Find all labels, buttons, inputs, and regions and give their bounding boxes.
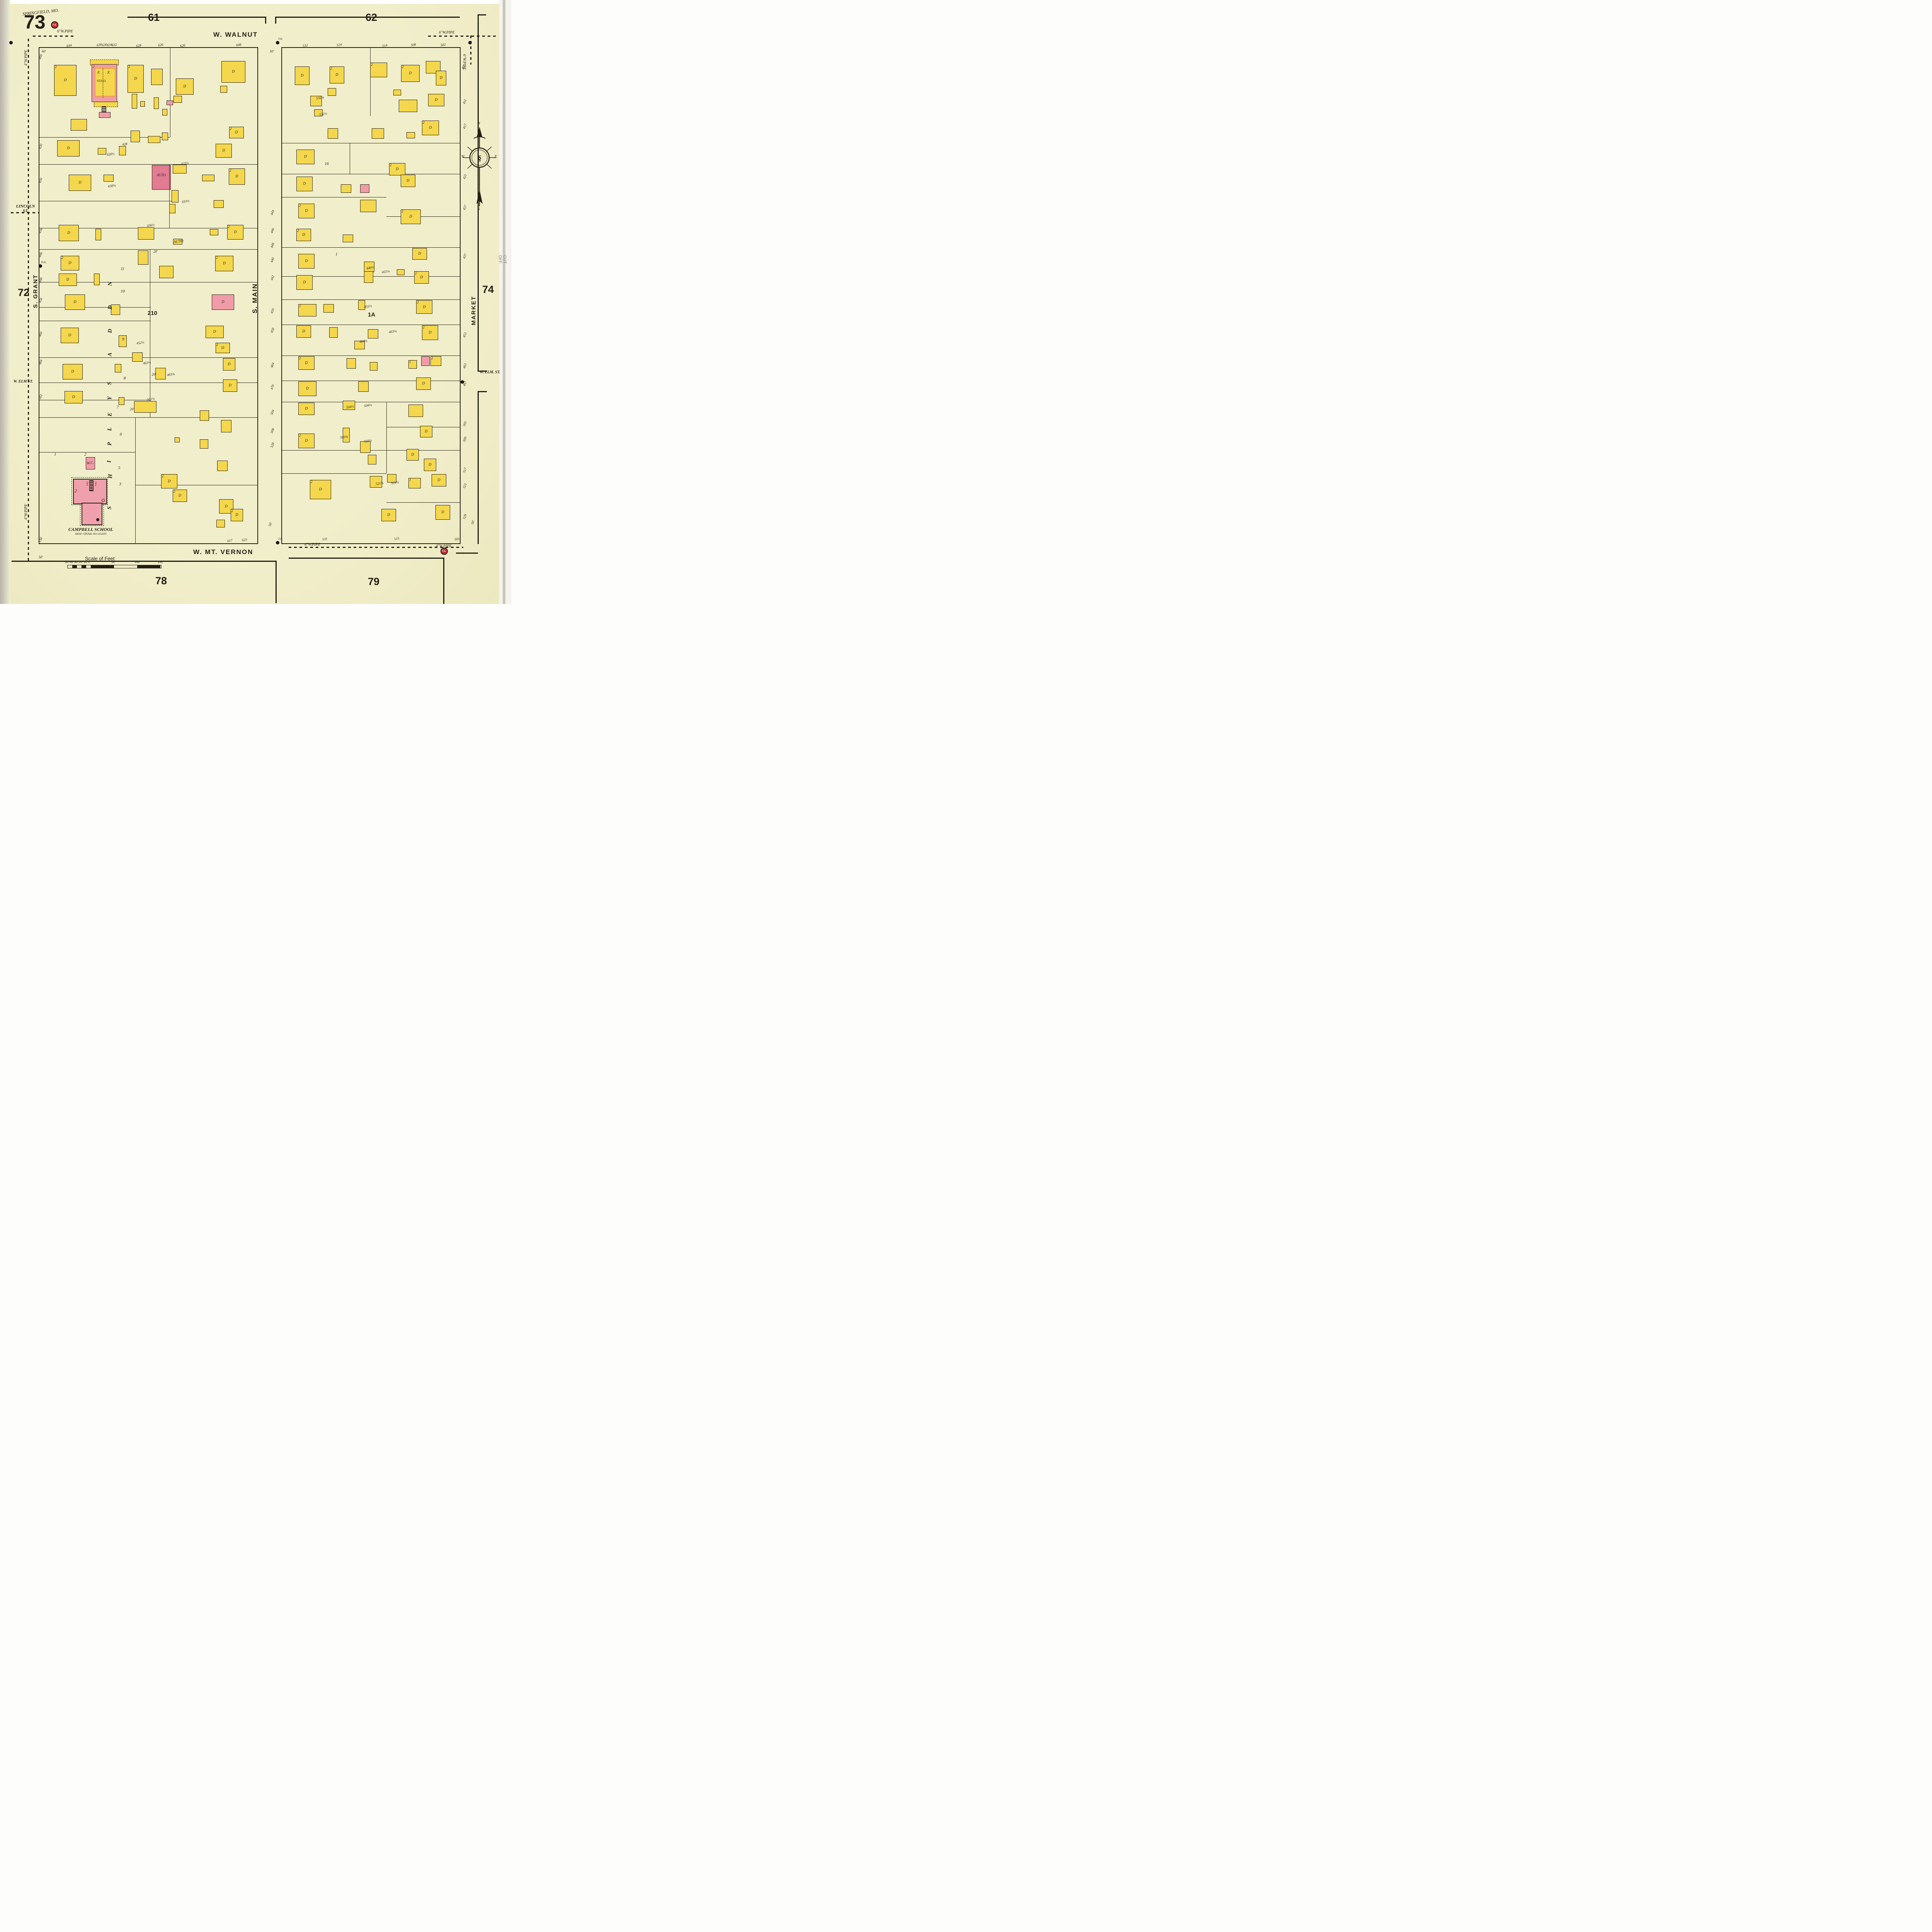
building-label: D <box>422 125 439 131</box>
building: 1 <box>298 304 316 316</box>
house-number: 428 <box>122 142 128 146</box>
building-floors: 2 <box>417 300 419 304</box>
building: D2 <box>161 474 177 488</box>
auto-label: AUTO <box>152 173 170 177</box>
block-label-210: 210 <box>148 310 157 316</box>
building <box>214 200 224 208</box>
map-line <box>281 381 460 381</box>
building: 2 <box>430 356 441 366</box>
building: D2 <box>414 271 429 284</box>
building: D2 <box>330 66 344 83</box>
map-line <box>275 17 460 18</box>
house-number: 531 <box>322 537 328 541</box>
pipe-label: 6"W.PIPE <box>462 54 466 70</box>
building: D <box>298 403 315 415</box>
building-floors: 2 <box>231 509 233 513</box>
map-line <box>39 417 257 418</box>
house-number: 617 <box>227 538 233 543</box>
building-floors: 2 <box>423 325 425 329</box>
building: D <box>420 426 432 437</box>
lot-number: 1 <box>335 252 338 257</box>
building: D <box>223 379 237 392</box>
hydrant-dot <box>461 380 464 384</box>
building-floors: 1 <box>299 304 301 308</box>
map-line <box>169 164 170 228</box>
pipe-line <box>33 36 76 37</box>
building-label: D <box>59 230 79 236</box>
building <box>341 184 351 193</box>
building: D2 <box>227 225 243 240</box>
map-line <box>39 47 39 544</box>
building: D <box>59 274 77 286</box>
building <box>408 405 423 417</box>
subdivision-letter: N <box>107 282 114 286</box>
lot-number: 3 <box>119 482 121 486</box>
lot-number: 7 <box>117 405 119 410</box>
building-label: D <box>216 148 232 153</box>
building-floors: 1 <box>409 478 411 482</box>
building: D <box>381 509 396 521</box>
map-line <box>39 249 257 250</box>
house-number: 50' <box>270 49 274 53</box>
building: D2 <box>216 343 230 353</box>
building: D <box>432 474 446 486</box>
house-number: 502 <box>440 43 446 47</box>
building-label: D <box>65 299 85 305</box>
building <box>162 109 167 116</box>
building <box>368 329 378 338</box>
house-number: 420½ <box>106 152 114 157</box>
house-number: 50' <box>470 520 475 525</box>
pipe-label: 4"W.PIPE <box>436 544 452 548</box>
building: D2 <box>401 209 421 224</box>
building-floors: 2 <box>297 229 299 233</box>
map-line <box>478 391 487 392</box>
map-canvas: SPRINGFIELD, MO. 73 F.A. F.A. 61 62 72 7… <box>0 0 512 604</box>
building: D2 <box>389 163 405 175</box>
house-number: 521¼ <box>375 481 383 486</box>
floors-label: 2 <box>93 65 95 68</box>
building: D2 <box>54 65 77 96</box>
building <box>328 88 336 96</box>
building-label: D <box>436 75 446 81</box>
fire-alarm-badge: F.A. <box>440 548 448 555</box>
building: D2 <box>229 127 244 138</box>
map-line <box>275 17 276 24</box>
building-floors: 2 <box>173 490 175 493</box>
building: D2 <box>310 480 331 499</box>
sheet-number: 73 <box>24 11 46 33</box>
house-number: 508 <box>270 428 275 434</box>
building: D <box>216 144 232 158</box>
map-line <box>39 400 151 400</box>
map-line <box>281 402 460 402</box>
house-number: 433½ <box>181 199 189 204</box>
map-line <box>281 325 460 325</box>
building-label: D <box>429 97 444 103</box>
building-floors: 2 <box>415 271 417 275</box>
map-line <box>350 143 350 174</box>
street-elm-left: W. ELM ST. <box>12 379 35 384</box>
building <box>200 410 209 421</box>
house-number: 608 <box>236 43 241 47</box>
building <box>169 204 175 213</box>
house-number: 517 <box>462 467 468 473</box>
map-line <box>386 502 460 503</box>
scale-bar-cells <box>67 565 162 568</box>
map-line <box>478 371 487 372</box>
house-number: 532¼ <box>316 95 324 100</box>
hydrant-label: D.H. <box>41 261 46 264</box>
building-label: D <box>162 478 177 484</box>
building <box>202 175 214 181</box>
frame-label: F. <box>107 71 110 75</box>
building <box>393 90 401 95</box>
building-label: D <box>61 332 79 338</box>
building <box>329 327 338 338</box>
subdivision-letter: S <box>107 506 113 509</box>
house-number: 470 <box>270 384 275 390</box>
subdivision-letter: S <box>107 382 113 385</box>
sanborn-map-sheet: SPRINGFIELD, MO. 73 F.A. F.A. 61 62 72 7… <box>0 0 512 604</box>
building-label: D <box>413 251 427 257</box>
building-label: D <box>59 277 77 283</box>
building <box>131 131 140 142</box>
building: W.C. <box>86 457 95 469</box>
building-floors: 2 <box>299 356 301 360</box>
building <box>99 112 111 118</box>
lot-number: 11 <box>121 267 124 271</box>
house-number: 521½ <box>391 480 399 485</box>
subdivision-letter: L <box>107 427 113 431</box>
house-number: 60' <box>42 49 46 53</box>
building-label: D <box>420 429 432 434</box>
building-label: D <box>223 361 235 367</box>
map-line <box>281 355 460 356</box>
building <box>397 269 405 275</box>
building: D <box>61 328 79 343</box>
map-line <box>150 249 150 417</box>
scale-bar: Scale of Feet 5040302010050100150 <box>62 556 170 571</box>
adjacent-sheet-74: 74 <box>482 284 494 296</box>
house-number: 515 <box>394 536 400 541</box>
house-number: 508 <box>410 43 416 47</box>
building: D2 <box>422 121 439 135</box>
map-line <box>276 561 277 603</box>
house-number: 529 <box>462 514 468 520</box>
house-number: 521 <box>462 483 468 489</box>
building: D <box>69 175 91 191</box>
compass-rose: § N E S W <box>462 124 497 213</box>
building <box>399 100 417 112</box>
pipe-line <box>11 212 39 213</box>
map-line <box>460 47 461 544</box>
subdivision-letter: Y <box>107 396 113 400</box>
block-label-1a: 1A <box>368 311 375 318</box>
pipe-line <box>428 36 498 37</box>
house-number: 50' <box>39 555 43 559</box>
house-number: 440 <box>270 257 275 263</box>
house-number: 444 <box>270 209 275 216</box>
building <box>140 101 145 107</box>
building: D2 <box>215 256 233 271</box>
building <box>151 69 163 85</box>
building: D <box>296 325 311 338</box>
building <box>155 368 166 379</box>
house-number: 20' <box>153 250 158 253</box>
building-label: D <box>417 304 432 310</box>
building <box>210 229 218 235</box>
house-number: 501 <box>454 537 460 541</box>
house-number: 458 <box>270 327 275 333</box>
map-line <box>281 47 461 48</box>
map-line <box>281 450 460 451</box>
map-line <box>281 197 386 197</box>
building-label: D <box>223 383 237 388</box>
map-line <box>386 402 387 473</box>
building-label: D <box>228 229 243 235</box>
building: D2 <box>298 434 315 448</box>
building: D <box>59 225 79 241</box>
building-label: D <box>173 493 187 498</box>
map-line <box>386 216 460 217</box>
map-line <box>135 485 257 485</box>
building: D2 <box>229 168 245 185</box>
building <box>370 362 378 371</box>
building-label: D <box>295 73 310 78</box>
building-label: D <box>299 386 316 392</box>
map-line <box>281 174 460 174</box>
building: 1 <box>408 478 421 488</box>
building-label: D <box>222 68 245 75</box>
building-floors: 2 <box>55 65 57 69</box>
building-label: D <box>299 438 315 444</box>
house-number: 509 <box>462 436 468 442</box>
building: D2 <box>416 300 432 314</box>
building: D <box>436 71 446 85</box>
house-number: 503½ <box>364 439 372 444</box>
building-label: D <box>299 360 315 366</box>
building <box>132 352 143 362</box>
building: D <box>298 254 315 269</box>
building <box>138 250 148 265</box>
house-number: 626 <box>158 43 163 47</box>
building <box>406 132 415 138</box>
school-details: HEAT: STEAM. NO LIGHTS <box>68 532 114 536</box>
building-label: D <box>297 279 313 285</box>
house-number: 464¼ <box>359 339 367 344</box>
map-line <box>281 473 386 474</box>
building: 1 <box>408 360 417 369</box>
building-floors: 2 <box>230 127 232 131</box>
lot-number: 5 <box>118 466 121 470</box>
building: D <box>65 391 83 403</box>
map-line <box>478 14 479 371</box>
building: D <box>296 150 315 164</box>
hydrant-dot <box>276 41 279 44</box>
building-label: D <box>297 328 311 334</box>
building-label: D <box>58 145 80 151</box>
house-number: 446 <box>270 228 275 234</box>
building: D <box>298 381 316 396</box>
map-line <box>281 143 460 143</box>
building-label: D <box>212 299 234 305</box>
house-number: 50' <box>268 522 273 527</box>
pipe-line <box>28 39 29 561</box>
wall-label: WALL <box>87 481 89 486</box>
subdivision-letter: H <box>107 474 114 479</box>
lot-number: 1 <box>54 452 56 457</box>
map-line <box>370 47 371 116</box>
map-line <box>289 558 444 559</box>
house-number: 453 <box>462 332 468 338</box>
building <box>372 128 384 139</box>
building-label: D <box>382 512 396 518</box>
house-number: 464 <box>270 362 275 368</box>
building-label: D <box>401 213 421 219</box>
building <box>115 364 121 372</box>
building <box>162 133 168 140</box>
pipe-label: 6"W.PIPE <box>439 31 455 35</box>
street-market: MARKET <box>471 296 477 325</box>
house-number: 411 <box>462 99 468 104</box>
building <box>217 461 228 471</box>
house-number: 620 <box>180 43 185 48</box>
building-label: D <box>63 368 83 374</box>
street-s-grant: S. GRANT <box>32 274 39 308</box>
auto-garage: AUTO <box>152 165 171 190</box>
building-label: D <box>206 329 224 335</box>
house-number: 452½ <box>136 340 144 345</box>
building-label: D <box>417 381 431 386</box>
subdivision-letter: P <box>107 442 113 446</box>
house-number: 442 <box>270 275 275 281</box>
margin-note: CUT OFF <box>498 255 507 264</box>
building-label: D <box>69 179 91 186</box>
building <box>98 148 106 155</box>
building-floors: 2 <box>61 256 63 260</box>
house-number: 425½ <box>180 161 189 166</box>
building-label: D <box>310 486 331 492</box>
building-label: D <box>415 274 429 280</box>
lot-number: 8 <box>124 376 126 381</box>
house-number: 463 <box>462 363 468 369</box>
building-label: D <box>299 208 315 214</box>
building <box>173 96 182 103</box>
house-number: 504 <box>270 409 275 415</box>
building: D <box>296 177 313 191</box>
building <box>119 146 126 155</box>
house-number: 448 <box>270 242 275 248</box>
house-number: 532½ <box>319 112 327 117</box>
pipe-label: 4"W.PIPE <box>24 50 28 66</box>
building <box>104 175 114 182</box>
house-number: 524 <box>336 43 342 47</box>
building: 2 <box>370 63 387 77</box>
building: D <box>435 505 450 520</box>
building-label: D <box>432 477 446 483</box>
building <box>95 229 101 240</box>
building-label: W.C. <box>86 461 95 466</box>
pipe-label: 4"W.PIPE <box>24 504 28 520</box>
building-label: D <box>299 258 315 264</box>
hydrant-label: T.H. <box>278 537 283 541</box>
building <box>132 94 137 109</box>
hydrant-dot <box>39 264 42 268</box>
hydrant-dot <box>9 41 13 44</box>
building-floors: 1 <box>409 360 411 364</box>
building: D <box>416 378 431 390</box>
building <box>360 200 376 212</box>
building <box>71 119 87 131</box>
building <box>134 401 156 413</box>
building: D <box>295 66 310 85</box>
building-label: D <box>389 166 405 172</box>
building <box>94 274 100 285</box>
building <box>221 420 231 432</box>
map-line <box>265 17 266 24</box>
lot-number: 16 <box>325 162 329 166</box>
building: D2 <box>173 490 187 502</box>
map-line <box>257 47 258 544</box>
house-number: 623 <box>241 537 247 542</box>
map-line <box>39 452 135 452</box>
building-floors: 2 <box>216 343 218 347</box>
map-line <box>128 17 266 18</box>
building <box>421 356 430 366</box>
house-number: 20' <box>152 372 156 376</box>
building-floors: 2 <box>299 204 301 207</box>
house-number: 455½ <box>364 304 372 309</box>
pipe-label: 6"W.PIPE <box>57 29 73 34</box>
building-floors: 2 <box>402 65 404 69</box>
map-line <box>135 417 136 543</box>
map-line <box>170 47 170 137</box>
hydrant-dot <box>276 541 279 544</box>
building-floors: 2 <box>371 63 373 66</box>
pipe-label: 4"W.PIPE <box>304 543 320 547</box>
house-number: 437 <box>462 253 468 259</box>
building-floors: 2 <box>230 168 231 172</box>
wall-label: WALL <box>95 481 97 486</box>
house-number: 430¼ <box>107 184 116 189</box>
house-number: 463¾ <box>167 372 175 377</box>
house-number: 628 <box>136 43 141 48</box>
building <box>148 136 160 143</box>
building-label: D <box>128 76 144 82</box>
building-floors: 2 <box>311 480 313 484</box>
map-line <box>281 299 460 300</box>
building: D <box>221 61 245 83</box>
compass-e: E <box>495 155 497 159</box>
street-walnut: W. WALNUT <box>213 31 258 39</box>
building-label: D <box>61 260 79 266</box>
building <box>200 439 208 449</box>
building-floors: 2 <box>390 163 392 167</box>
house-number: 532 <box>302 43 308 48</box>
hydrant-dot <box>468 41 472 44</box>
compass-w: W <box>461 155 464 159</box>
building: D <box>428 94 444 106</box>
map-line <box>39 321 151 321</box>
building: D2 <box>298 356 315 370</box>
building <box>323 304 334 313</box>
building-label: D <box>54 77 77 83</box>
building: AUTO <box>173 239 182 245</box>
subdivision-letter: A <box>107 352 114 356</box>
building-label: D <box>401 70 420 77</box>
building-floors: 2 <box>228 225 230 229</box>
